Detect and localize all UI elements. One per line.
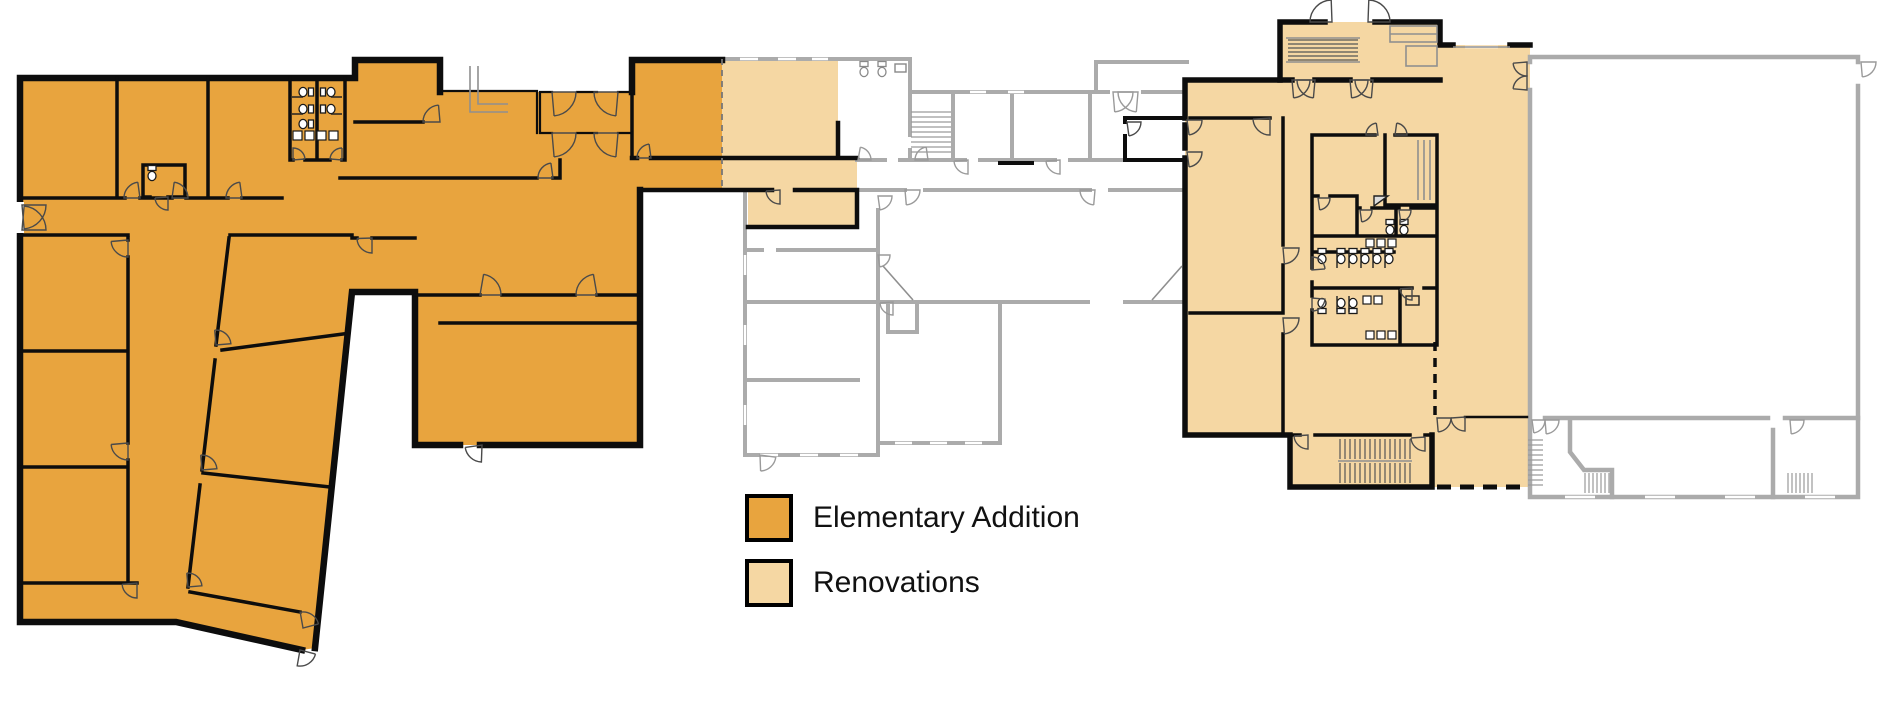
door-swing-icon (1310, 0, 1332, 22)
door-swing-icon (1790, 420, 1804, 434)
toilet-icon (1386, 220, 1394, 235)
legend: Elementary Addition Renovations (745, 494, 1080, 624)
middle-lower-walls (745, 302, 1185, 455)
toilet-icon (321, 104, 336, 113)
legend-item-renovations: Renovations (745, 559, 1080, 607)
door-swing-icon (1368, 0, 1390, 22)
renovations-swatch-icon (745, 559, 793, 607)
sink-icon (317, 131, 326, 140)
door-swing-icon (905, 190, 920, 205)
toilet-icon (1337, 249, 1345, 264)
stairs-icon (1340, 439, 1410, 459)
middle-entry-corridor (1096, 62, 1187, 92)
floor-plan-page: Elementary Addition Renovations (0, 0, 1882, 702)
gym-outer-walls (1530, 57, 1858, 497)
door-swing-icon (1046, 160, 1060, 174)
renovation-room-north (722, 59, 838, 158)
sink-icon (293, 131, 302, 140)
existing-sink-icon (895, 64, 906, 72)
elementary-addition-swatch-icon (745, 494, 793, 542)
door-swing-icon (1118, 92, 1138, 112)
toilet-icon (1337, 298, 1345, 313)
toilet-icon (1385, 249, 1393, 264)
sink-icon (1388, 239, 1396, 247)
door-swing-icon (1545, 420, 1559, 434)
stairs-icon (1585, 473, 1609, 493)
sink-icon (1363, 296, 1371, 304)
gym-lower-band-walls (1545, 418, 1858, 497)
stairs-icon (1340, 463, 1410, 483)
middle-west-wall (745, 190, 878, 455)
toilet-icon (299, 119, 314, 128)
toilet-icon (1373, 249, 1381, 264)
renovation-room-small (748, 190, 857, 227)
door-swing-icon (1532, 420, 1545, 433)
legend-label-renovations: Renovations (813, 566, 980, 600)
existing-gym-walls (1530, 57, 1858, 497)
toilet-icon (1349, 298, 1357, 313)
toilet-icon (1361, 249, 1369, 264)
sink-icon (1377, 239, 1385, 247)
sink-icon (1374, 296, 1382, 304)
sink-icon (1377, 331, 1385, 339)
toilet-icon (148, 166, 156, 181)
room-chamfer-lines (883, 266, 1182, 300)
door-swing-icon (1113, 92, 1133, 112)
renovation-corridor (722, 158, 857, 190)
toilet-icon (299, 87, 314, 96)
toilet-icon (299, 104, 314, 113)
sink-icon (1366, 331, 1374, 339)
stairs-icon (1788, 473, 1812, 493)
sink-icon (1366, 239, 1374, 247)
sink-icon (329, 131, 338, 140)
door-swing-icon (878, 196, 892, 210)
sink-icon (305, 131, 314, 140)
door-swing-icon (760, 455, 776, 471)
middle-band-walls (857, 190, 1185, 302)
door-swing-icon (1861, 62, 1876, 77)
toilet-icon (321, 87, 336, 96)
door-swing-icon (1080, 190, 1095, 205)
door-swing-icon (954, 160, 968, 174)
toilet-icon (1349, 249, 1357, 264)
toilet-icon (860, 62, 868, 77)
storage-room-fill (1125, 118, 1185, 160)
legend-item-elementary-addition: Elementary Addition (745, 494, 1080, 542)
legend-label-elementary-addition: Elementary Addition (813, 501, 1080, 535)
toilet-icon (878, 62, 886, 77)
stairs-icon (911, 112, 951, 152)
door-swing-icon (297, 650, 315, 666)
sink-icon (1388, 331, 1396, 339)
